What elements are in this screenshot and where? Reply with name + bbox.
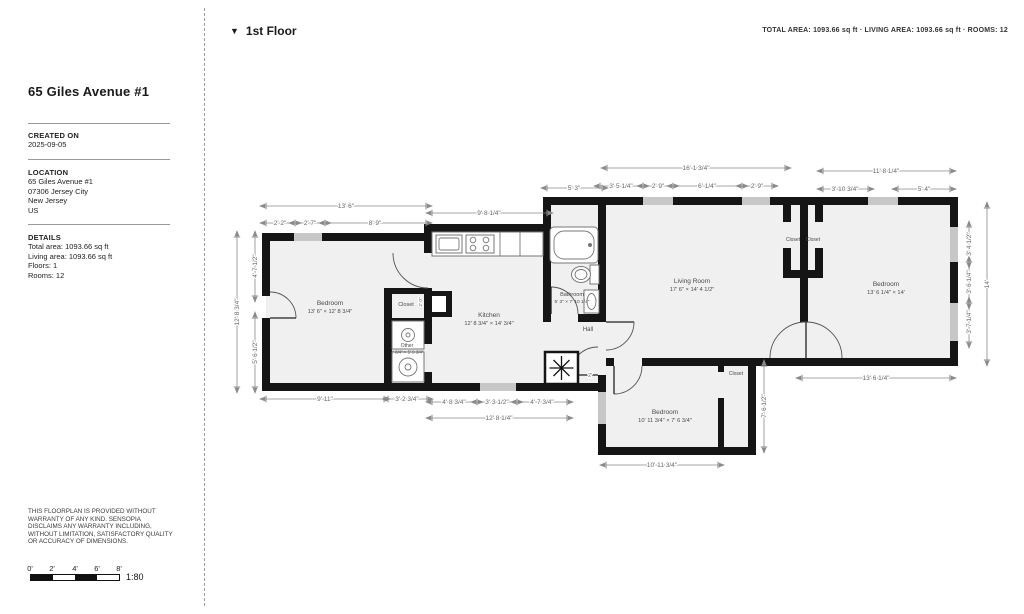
room-name-label: Closet [806,237,821,243]
dimension-label: 4' 8 3/4" [442,399,466,406]
room-size-label: 17' 6" × 14' 4 1/2" [670,287,715,293]
floorplan-canvas: 13' 6"2' 2"2' 7"8' 9"9' 8 1/4"5' 3"16' 1… [0,0,1024,614]
dimension-label: 16' 1 3/4" [682,165,710,172]
room-size-label: 2' 3/4" × 5' 9 3/4" [391,350,424,355]
room-name-label: Closet [729,371,744,377]
dimension-label: 14' [984,280,991,288]
room-name-label: Other [401,343,414,349]
dimension-label: 5' 4" [918,186,931,193]
dimension-label: 3' 10 3/4" [831,186,859,193]
kitchen-counter [432,232,543,256]
dimension-label: 2' 9" [751,183,764,190]
dimension-label: 9' 8 1/4" [477,210,501,217]
room-name-label: Bathroom [560,292,584,298]
dimension-label: 2' 7" [304,220,317,227]
dimension-label: 3' 5 1/4" [609,183,633,190]
room-size-label: 12' 8 3/4" × 14' 3/4" [464,321,513,327]
room-name-label: Bedroom [873,281,899,288]
dimension-label: 5' 6 1/2" [252,340,259,364]
dimension-label: 2' 9" [652,183,665,190]
duct-icon [426,291,452,317]
ac-unit-icon [545,352,578,384]
dimension-label: 5' 3" [568,185,581,192]
dimension-label: 8' 9" [369,220,382,227]
dimension-label: 3' 7 1/4" [966,310,973,334]
dimension-label: 2' [588,373,592,379]
floorplan-page: 65 Giles Avenue #1 CREATED ON 2025-09-05… [0,0,1024,614]
dimension-label: 4' 7 3/4" [530,399,554,406]
dimension-label: 3' 4 1/2" [966,232,973,256]
room-size-label: 13' 6 1/4" × 14' [867,290,905,296]
dimension-label: 6' 1/4" [698,183,717,190]
room-size-label: 10' 11 3/4" × 7' 6 3/4" [638,418,692,424]
dimension-label: 4' 7 1/2" [252,254,259,278]
room-name-label: Bedroom [317,300,343,307]
dimension-label: 12' 8 3/4" [234,298,241,326]
dimension-label: 12' 8 1/4" [485,415,513,422]
bathtub-icon [550,227,598,263]
dimension-label: 13' 6" [338,203,355,210]
room-name-label: Kitchen [478,312,500,319]
dimension-label: 11' 8 1/4" [873,168,900,175]
sink-icon [436,235,462,253]
dimension-label: 13' 6 1/4" [862,375,890,382]
dimension-label: 2' 0" [418,297,424,307]
dimension-label: 2' 2" [274,220,287,227]
dimension-label: 3' 6 1/4" [966,270,973,294]
dimension-label: 7' 6 1/2" [761,394,768,418]
dimension-label: 3' 2 3/4" [395,396,419,403]
room-name-label: Closet [786,237,801,243]
toilet-icon [572,265,600,284]
room-size-label: 13' 6" × 12' 8 3/4" [308,309,353,315]
room-size-label: 5' 3" × 7' 10 1/4" [555,299,590,305]
room-name-label: Bedroom [652,409,678,416]
dimension-label: 3' 3 1/2" [485,399,509,406]
dimension-label: 9' 11" [317,396,333,403]
washer-icon [392,352,424,382]
room-name-label: Closet [398,302,414,308]
room-name-label: Living Room [674,278,710,285]
stove-icon [466,235,494,253]
room-name-label: Hall [583,327,593,333]
dimension-label: 10' 11 3/4" [647,462,678,469]
